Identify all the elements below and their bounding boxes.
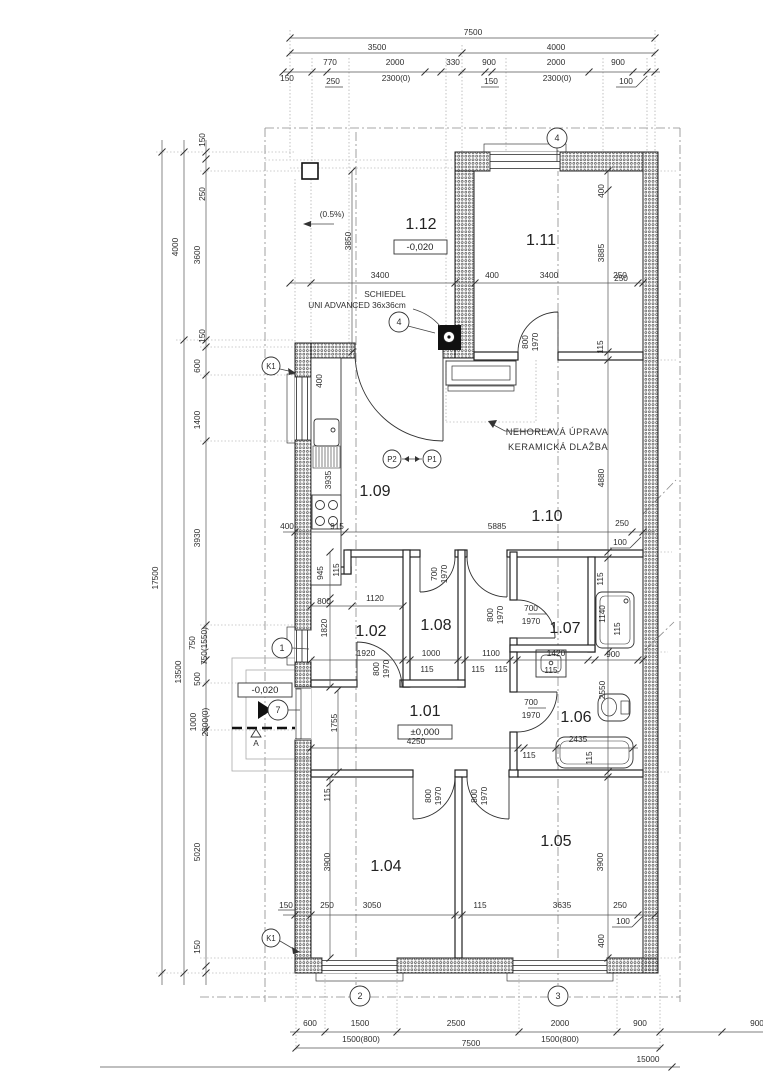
dim-row: 400 bbox=[485, 270, 499, 280]
room-label-1-05: 1.05 bbox=[540, 833, 571, 850]
dim-right: 100 bbox=[616, 916, 630, 926]
dim-left-overall: 17500 bbox=[150, 566, 160, 589]
dim-left: 13500 bbox=[173, 660, 183, 683]
door-dim: 700 bbox=[524, 697, 538, 707]
door-dim: 700 bbox=[429, 567, 439, 581]
dim-top: 330 bbox=[446, 57, 460, 67]
dim-row: 915 bbox=[330, 521, 344, 531]
dim-left: 150 bbox=[197, 329, 207, 343]
dim-left: 1400 bbox=[192, 410, 202, 429]
door-dim: 1970 bbox=[433, 786, 443, 805]
window-bottom-room104 bbox=[316, 958, 403, 981]
dim-top: 150 bbox=[280, 73, 294, 83]
room-label-1-11: 1.11 bbox=[526, 232, 556, 249]
interior-doors bbox=[355, 312, 558, 819]
dim-mid: 115 bbox=[331, 563, 341, 577]
window-top-room111 bbox=[484, 144, 566, 171]
dim-left: 150 bbox=[192, 940, 202, 954]
dim-row2: 1000 bbox=[422, 648, 441, 658]
dim-top-window: 2300(0) bbox=[543, 73, 572, 83]
dim-top: 2000 bbox=[547, 57, 566, 67]
dim-right: 100 bbox=[613, 537, 627, 547]
dim-top: 3500 bbox=[368, 42, 387, 52]
dim-row: 250 bbox=[613, 270, 627, 280]
dim-bottom: 2500 bbox=[447, 1018, 466, 1028]
dim-bottom: 600 bbox=[303, 1018, 317, 1028]
detail-marker-4-chimney: 4 bbox=[389, 312, 409, 332]
door-dim: 1970 bbox=[495, 605, 505, 624]
axis-marker-3-label: 3 bbox=[555, 991, 560, 1001]
dim-left: 1000 bbox=[188, 712, 198, 731]
extension-lines bbox=[156, 30, 680, 1050]
dim-mid: 800 bbox=[317, 596, 331, 606]
door-dim: 700 bbox=[524, 603, 538, 613]
dim-mid: 1120 bbox=[366, 593, 384, 603]
dim-row3: 115 bbox=[522, 750, 536, 760]
entry-marker-7: 7 bbox=[268, 700, 288, 720]
floor-plan-page: 7500350040007702000330900200090015025023… bbox=[0, 0, 763, 1080]
dim-row4: 115 bbox=[473, 900, 487, 910]
door-terrace bbox=[355, 353, 443, 441]
room-label-1-01: 1.01 bbox=[409, 703, 440, 720]
dim-row: 3400 bbox=[371, 270, 390, 280]
fireproof-label-2: KERAMICKÁ DLAŽBA bbox=[508, 442, 608, 452]
dim-row2: 1420 bbox=[547, 648, 566, 658]
dim-top: 2000 bbox=[386, 57, 405, 67]
dim-left: 500 bbox=[192, 672, 202, 686]
dim-bottom: 7500 bbox=[462, 1038, 481, 1048]
dim-row2: 1920 bbox=[357, 648, 376, 658]
fireproof-label-1: NEHORĽAVÁ ÚPRAVA bbox=[506, 427, 609, 437]
dim-row2: 1100 bbox=[482, 648, 500, 658]
dim-bottom: 900 bbox=[750, 1018, 763, 1028]
detail-marker-4-chimney-label: 4 bbox=[396, 317, 401, 327]
dim-mid: 1755 bbox=[329, 713, 339, 732]
section-marker-p2: P2 bbox=[383, 450, 401, 468]
dim-bottom: 1500 bbox=[351, 1018, 370, 1028]
door-dim: 1970 bbox=[522, 616, 541, 626]
dim-row4: 250 bbox=[320, 900, 334, 910]
dim-top: 4000 bbox=[547, 42, 566, 52]
dim-right: 115 bbox=[595, 340, 605, 354]
axis-marker-1: 1 bbox=[272, 638, 292, 658]
window-bottom-room105 bbox=[507, 958, 613, 981]
dim-left: 3930 bbox=[192, 528, 202, 547]
dim-row2: 115 bbox=[544, 665, 558, 675]
entry-marker-7-label: 7 bbox=[275, 705, 280, 715]
dim-right: 115 bbox=[595, 572, 605, 586]
dim-fixture: 2435 bbox=[569, 734, 588, 744]
detail-marker-k1-bottom-label: K1 bbox=[266, 934, 276, 943]
axis-marker-2-label: 2 bbox=[357, 991, 362, 1001]
door-dim: 800 bbox=[469, 789, 479, 803]
axis-marker-3: 3 bbox=[548, 986, 568, 1006]
door-dim: 800 bbox=[520, 335, 530, 349]
axis-marker-4-top-label: 4 bbox=[554, 133, 559, 143]
section-letter: A bbox=[253, 738, 259, 748]
dim-row3: 115 bbox=[584, 751, 594, 765]
dim-right: 900 bbox=[606, 649, 620, 659]
room-label-1-02: 1.02 bbox=[355, 623, 386, 640]
door-dim: 800 bbox=[371, 662, 381, 676]
door-dim: 1970 bbox=[381, 659, 391, 678]
dim-bottom-overall: 15000 bbox=[636, 1054, 659, 1064]
dim-top-window: 2300(0) bbox=[382, 73, 411, 83]
section-marker-p1: P1 bbox=[423, 450, 441, 468]
level-label-terrace: -0,020 bbox=[407, 242, 434, 253]
dim-right: 3885 bbox=[596, 243, 606, 262]
room-label-1-12: 1.12 bbox=[405, 216, 436, 233]
dim-top: 100 bbox=[619, 76, 633, 86]
dim-top: 900 bbox=[611, 57, 625, 67]
axis-marker-4-top: 4 bbox=[547, 128, 567, 148]
entry-door-opening bbox=[295, 687, 311, 740]
dim-left: 600 bbox=[192, 359, 202, 373]
door-dim: 1970 bbox=[479, 786, 489, 805]
window-left-kitchen bbox=[287, 374, 311, 443]
room-label-1-04: 1.04 bbox=[370, 858, 401, 875]
chimney-label-2: UNI ADVANCED 36x36cm bbox=[308, 300, 406, 310]
dim-left: 150 bbox=[197, 133, 207, 147]
roof-column bbox=[302, 163, 318, 179]
dim-left: 750 bbox=[187, 636, 197, 650]
door-dim: 800 bbox=[485, 608, 495, 622]
dim-kitchen: 400 bbox=[314, 374, 324, 388]
dim-left: 250 bbox=[197, 187, 207, 201]
section-marker-p1-label: P1 bbox=[427, 455, 437, 464]
dim-right: 115 bbox=[612, 622, 622, 636]
door-dim: 800 bbox=[423, 789, 433, 803]
level-label-main: ±0,000 bbox=[411, 727, 440, 738]
dim-bottom: 900 bbox=[633, 1018, 647, 1028]
dim-bottom: 2000 bbox=[551, 1018, 570, 1028]
dim-row2: 115 bbox=[420, 664, 434, 674]
dim-bottomroom: 115 bbox=[322, 788, 332, 802]
dim-right: 400 bbox=[596, 184, 606, 198]
axis-marker-1-label: 1 bbox=[279, 643, 284, 653]
chimney bbox=[438, 325, 461, 350]
fireplace-hearth bbox=[446, 361, 516, 391]
dim-fixture: 1140 bbox=[597, 605, 607, 623]
room-label-1-07: 1.07 bbox=[549, 620, 580, 637]
slope-label: (0.5%) bbox=[320, 209, 345, 219]
floor-plan-canvas: 7500350040007702000330900200090015025023… bbox=[0, 0, 763, 1080]
dim-bottom-window: 1500(800) bbox=[342, 1034, 380, 1044]
dim-top: 770 bbox=[323, 57, 337, 67]
dim-row2: 115 bbox=[471, 664, 485, 674]
dim-right: 250 bbox=[615, 518, 629, 528]
level-label-porch: -0,020 bbox=[252, 685, 279, 696]
fixtures bbox=[311, 358, 634, 768]
bathtub bbox=[556, 737, 633, 768]
room-label-1-08: 1.08 bbox=[420, 617, 451, 634]
dim-bottomroom: 3900 bbox=[322, 852, 332, 871]
dim-mid: 945 bbox=[315, 566, 325, 580]
dim-right: 2550 bbox=[597, 680, 607, 699]
room-label-1-06: 1.06 bbox=[560, 709, 591, 726]
door-hall-living bbox=[467, 557, 507, 597]
dim-right: 4880 bbox=[596, 468, 606, 487]
dim-right: 3900 bbox=[595, 852, 605, 871]
dim-row4: 150 bbox=[279, 900, 293, 910]
dim-terrace: 3850 bbox=[343, 231, 353, 250]
dim-right: 400 bbox=[596, 934, 606, 948]
dim-right: 250 bbox=[613, 900, 627, 910]
dim-row4: 3050 bbox=[363, 900, 382, 910]
door-dim: 1970 bbox=[439, 564, 449, 583]
dim-top: 150 bbox=[484, 76, 498, 86]
axis-marker-2: 2 bbox=[350, 986, 370, 1006]
dim-row: 5885 bbox=[488, 521, 507, 531]
dim-left: 5020 bbox=[192, 842, 202, 861]
dim-row2: 115 bbox=[494, 664, 508, 674]
dim-left: 3600 bbox=[192, 245, 202, 264]
dim-bottom-window: 1500(800) bbox=[541, 1034, 579, 1044]
detail-marker-k1-top-label: K1 bbox=[266, 362, 276, 371]
dim-row: 400 bbox=[280, 521, 294, 531]
dim-top: 900 bbox=[482, 57, 496, 67]
dim-kitchen: 3935 bbox=[323, 470, 333, 489]
dim-row: 3400 bbox=[540, 270, 559, 280]
room-label-1-10: 1.10 bbox=[531, 508, 562, 525]
dim-top: 250 bbox=[326, 76, 340, 86]
dim-mid: 1820 bbox=[319, 618, 329, 637]
detail-marker-k1-top: K1 bbox=[262, 357, 280, 375]
dim-left-door: 2300(0) bbox=[200, 707, 210, 736]
dim-row4: 3635 bbox=[553, 900, 572, 910]
dim-left-window: 750(1550) bbox=[199, 627, 209, 665]
door-dim: 1970 bbox=[530, 332, 540, 351]
section-marker-p2-label: P2 bbox=[387, 455, 397, 464]
dim-top-overall: 7500 bbox=[464, 27, 483, 37]
dim-left: 4000 bbox=[170, 237, 180, 256]
room-label-1-09: 1.09 bbox=[359, 483, 390, 500]
door-dim: 1970 bbox=[522, 710, 541, 720]
detail-marker-k1-bottom: K1 bbox=[262, 929, 280, 947]
chimney-label-1: SCHIEDEL bbox=[364, 289, 406, 299]
